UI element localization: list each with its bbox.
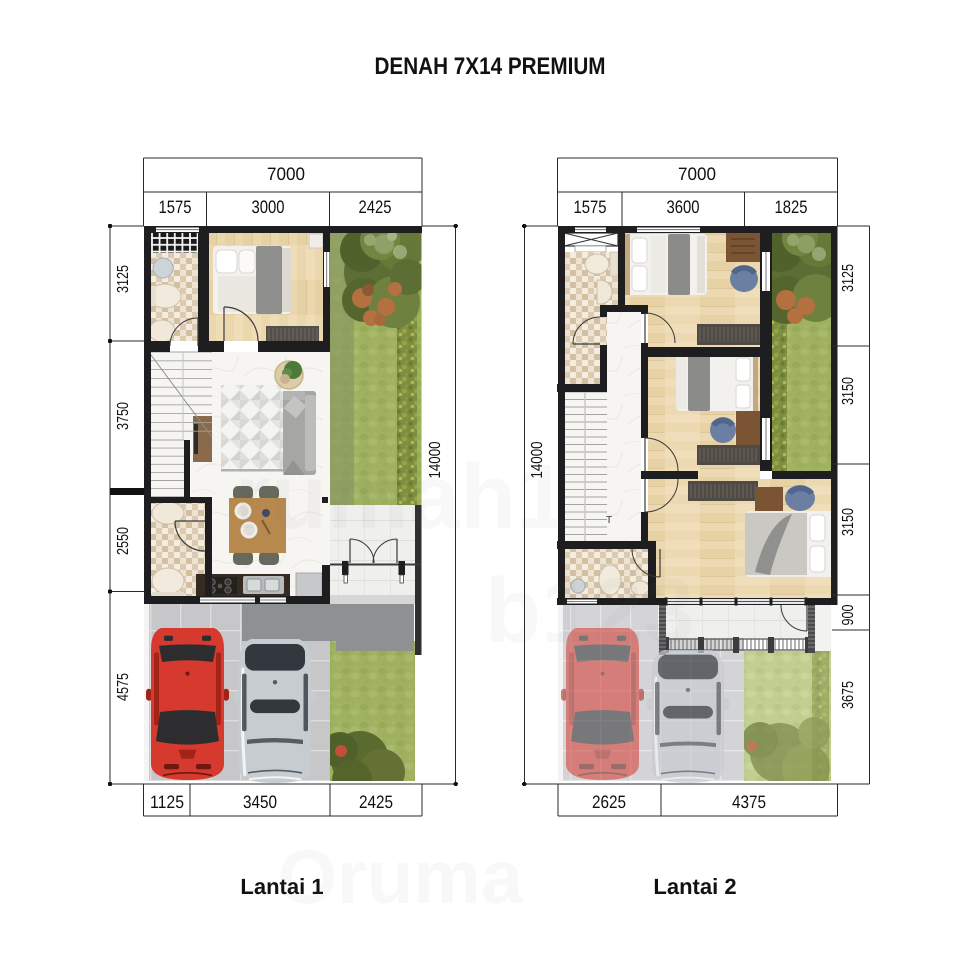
svg-text:3000: 3000	[252, 197, 285, 217]
svg-text:1575: 1575	[574, 197, 607, 217]
svg-text:2425: 2425	[359, 792, 393, 812]
svg-text:1575: 1575	[159, 197, 192, 217]
svg-text:7000: 7000	[678, 164, 716, 184]
svg-text:1825: 1825	[775, 197, 808, 217]
svg-text:b123: b123	[485, 560, 695, 662]
svg-text:3125: 3125	[840, 264, 857, 292]
svg-text:Lantai 2: Lantai 2	[653, 874, 736, 899]
svg-text:4375: 4375	[732, 792, 766, 812]
svg-text:3125: 3125	[115, 265, 132, 293]
svg-text:7000: 7000	[267, 164, 305, 184]
svg-text:3750: 3750	[115, 402, 132, 430]
svg-text:2425: 2425	[359, 197, 392, 217]
svg-text:3675: 3675	[840, 681, 857, 709]
svg-text:3600: 3600	[667, 197, 700, 217]
svg-text:DENAH 7X14 PREMIUM: DENAH 7X14 PREMIUM	[375, 53, 606, 80]
svg-text:2550: 2550	[115, 527, 132, 555]
svg-text:Oruma: Oruma	[278, 835, 524, 920]
svg-text:4575: 4575	[115, 673, 132, 701]
svg-text:2625: 2625	[592, 792, 626, 812]
svg-text:3450: 3450	[243, 792, 277, 812]
svg-text:rumah1: rumah1	[235, 446, 567, 548]
svg-text:3150: 3150	[840, 508, 857, 536]
svg-text:T: T	[606, 515, 612, 526]
svg-text:900: 900	[840, 604, 857, 625]
svg-text:1125: 1125	[150, 792, 184, 812]
svg-text:3150: 3150	[840, 377, 857, 405]
